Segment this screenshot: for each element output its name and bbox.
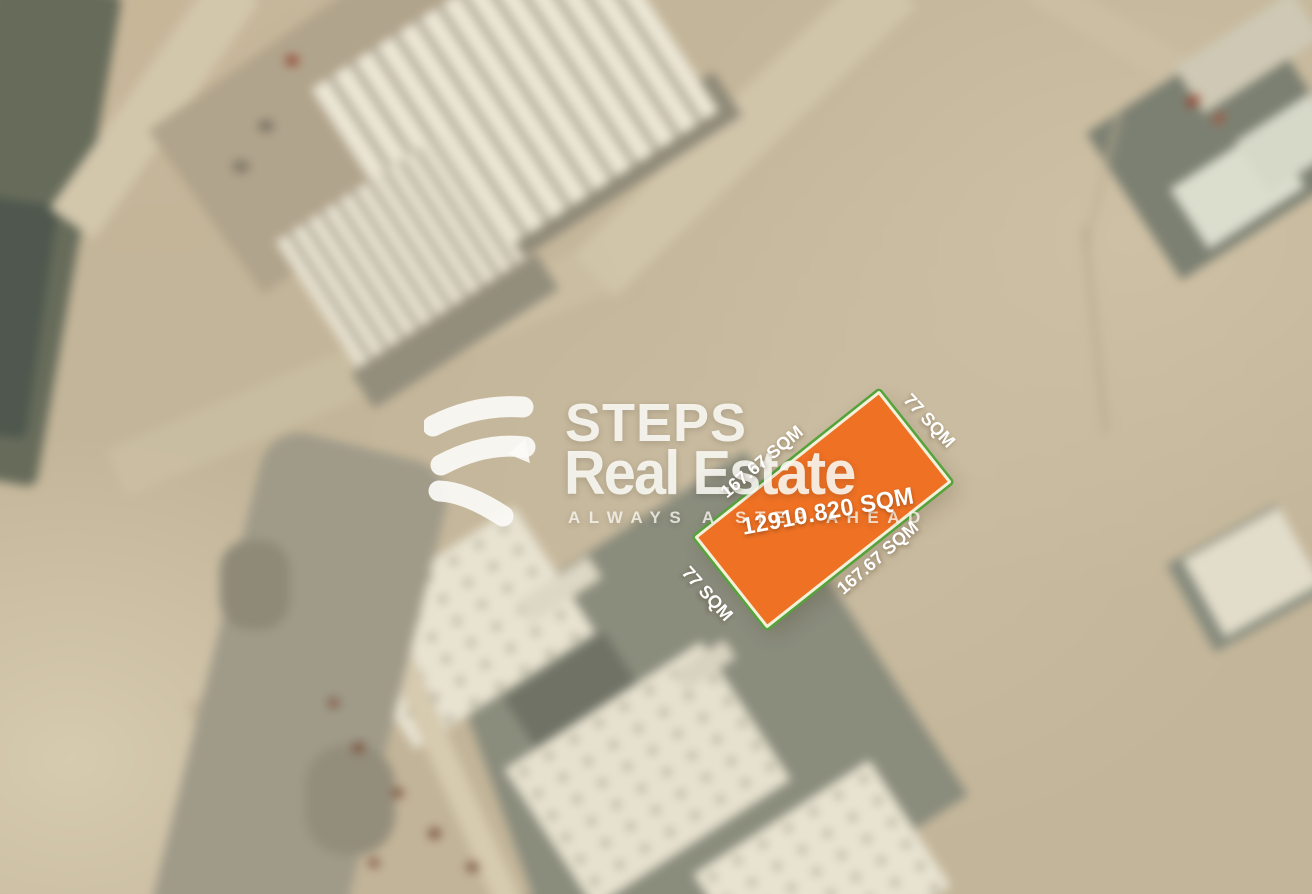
debris [258, 120, 274, 132]
steps-ribbon-icon [424, 392, 536, 532]
debris [328, 698, 339, 708]
debris [232, 160, 250, 173]
brand-name-line2: Real Estate [564, 438, 854, 509]
debris [466, 862, 479, 872]
debris [428, 828, 441, 839]
debris [392, 788, 404, 798]
debris [285, 55, 299, 66]
listing-image: STEPS Real Estate ALWAYS A STEP AHEAD 12… [0, 0, 1312, 894]
scrub-blotch [305, 745, 395, 855]
scrub-blotch [220, 540, 290, 630]
debris [352, 742, 365, 753]
debris [368, 858, 380, 868]
